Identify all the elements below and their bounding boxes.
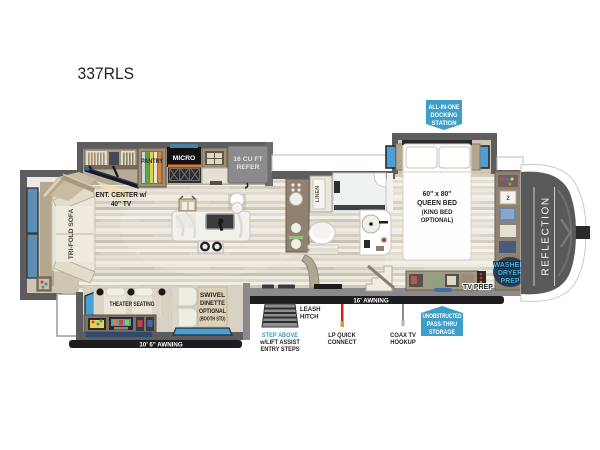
svg-text:(BOOTH STD): (BOOTH STD) [200, 317, 226, 323]
svg-text:40" TV: 40" TV [111, 201, 132, 208]
svg-text:DRYER: DRYER [498, 270, 522, 277]
svg-text:PASS-THRU: PASS-THRU [427, 321, 457, 328]
svg-text:CONNECT: CONNECT [328, 340, 357, 346]
svg-text:PANTRY: PANTRY [141, 159, 163, 165]
svg-text:w/LIFT ASSIST: w/LIFT ASSIST [259, 340, 300, 346]
svg-text:OPTIONAL: OPTIONAL [199, 308, 226, 315]
svg-text:TV PREP: TV PREP [463, 284, 493, 291]
svg-text:REFLECTION: REFLECTION [541, 196, 552, 275]
svg-text:UNOBSTRUCTED: UNOBSTRUCTED [423, 313, 462, 320]
svg-text:SWIVEL: SWIVEL [200, 292, 225, 299]
svg-text:REFER: REFER [236, 164, 259, 171]
svg-text:337RLS: 337RLS [78, 65, 135, 83]
svg-text:ALL-IN-ONE: ALL-IN-ONE [429, 104, 460, 111]
svg-text:16 CU FT: 16 CU FT [233, 156, 263, 163]
svg-text:LEASH: LEASH [300, 306, 321, 313]
svg-text:STATION: STATION [432, 120, 457, 127]
svg-text:HITCH: HITCH [300, 313, 319, 320]
svg-text:DINETTE: DINETTE [200, 300, 226, 307]
svg-text:MICRO: MICRO [173, 155, 196, 162]
svg-text:16' AWNING: 16' AWNING [353, 298, 388, 305]
svg-text:QUEEN BED: QUEEN BED [417, 200, 457, 207]
svg-text:HOOKUP: HOOKUP [390, 340, 415, 346]
svg-text:STORAGE: STORAGE [429, 329, 455, 336]
svg-text:(KING BED: (KING BED [422, 209, 453, 216]
svg-text:ENTRY STEPS: ENTRY STEPS [260, 347, 299, 353]
svg-text:STEP ABOVE: STEP ABOVE [262, 333, 298, 339]
svg-text:TRI-FOLD SOFA: TRI-FOLD SOFA [68, 208, 75, 259]
svg-text:PREP: PREP [500, 278, 519, 285]
svg-text:60" x 80": 60" x 80" [423, 191, 452, 198]
svg-text:DOCKING: DOCKING [431, 112, 458, 119]
svg-text:COAX TV: COAX TV [390, 333, 416, 339]
svg-text:ENT. CENTER w/: ENT. CENTER w/ [96, 192, 147, 199]
svg-text:THEATER SEATING: THEATER SEATING [110, 301, 155, 308]
svg-text:LINEN: LINEN [315, 186, 321, 203]
svg-text:10' 6" AWNING: 10' 6" AWNING [139, 342, 183, 349]
svg-text:LP QUICK: LP QUICK [328, 333, 356, 339]
svg-text:OPTIONAL): OPTIONAL) [421, 217, 453, 224]
